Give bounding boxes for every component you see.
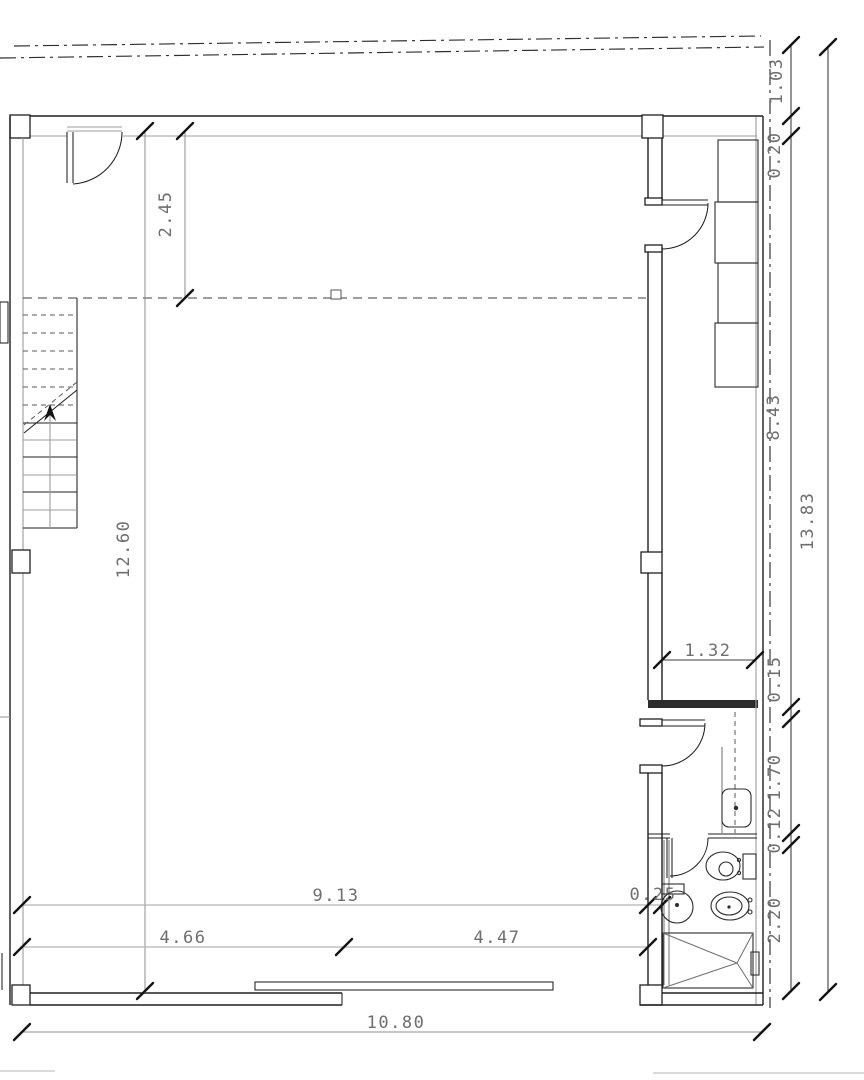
entrance-bench [255, 982, 553, 990]
dim-label-right-side-total: 13.83 [798, 492, 818, 551]
pier-top-mid [642, 115, 663, 138]
washbasin-drain [734, 806, 738, 810]
wall-end-cap [645, 198, 662, 205]
toilet-cistern [743, 854, 756, 879]
entry-door [67, 127, 122, 184]
dim-label-bottom-total-width: 10.80 [367, 1013, 426, 1033]
bathroom-corridor-door [662, 720, 705, 766]
dim-label-right-side-upper: 8.43 [764, 394, 784, 441]
upper-right-door [662, 200, 708, 249]
door-swing-arc [73, 132, 122, 184]
dim-label-bathroom-width: 1.32 [685, 641, 732, 661]
cabinet-unit [718, 140, 758, 202]
floor-plan-sheet: 2.45 12.60 1.03 0.20 8.43 13.83 0.15 1.7… [0, 0, 864, 1080]
stair-treads-above-break [23, 315, 77, 405]
dimension-ticks [14, 37, 836, 1040]
toilet-seat-hinge [737, 871, 740, 874]
left-wall-pier-bottom [12, 985, 30, 1005]
bidet-drain [727, 905, 730, 908]
wall-end-cap [640, 719, 662, 726]
bidet-tap [748, 910, 752, 914]
wall-end-cap [640, 765, 662, 773]
shower-tray [663, 933, 759, 988]
bottom-wall [30, 982, 763, 1005]
dim-label-partition-upper: 0.15 [765, 656, 785, 703]
wall-end-cap [645, 245, 662, 252]
boundary-line-upper [14, 36, 761, 46]
dim-label-bottom-span-right: 4.47 [474, 928, 521, 948]
toilet [706, 852, 756, 880]
shower-slope-line [663, 933, 737, 963]
column-marker [331, 290, 341, 299]
partition-wall-upper [648, 700, 758, 708]
dim-label-room-depth-top: 2.45 [156, 191, 176, 238]
wardrobe-cabinets [715, 140, 758, 387]
shower-slope-line [663, 963, 737, 988]
corner-pier-top-left [10, 115, 30, 138]
toilet-drain [719, 862, 733, 876]
dim-label-wall-top-right: 0.20 [765, 132, 785, 179]
cabinet-unit [715, 202, 758, 263]
shower-tray-outline [663, 933, 753, 988]
dim-label-wall-right-bottom: 0.25 [630, 885, 677, 905]
dim-label-wc-room-depth: 2.20 [765, 897, 785, 944]
boundary-line-lower [0, 47, 764, 58]
left-wall-pier [12, 550, 30, 573]
exterior-right-wall [756, 116, 763, 1005]
dimension-labels: 2.45 12.60 1.03 0.20 8.43 13.83 0.15 1.7… [114, 58, 818, 1033]
pier-bottom-right [640, 985, 662, 1005]
dim-label-interior-width-bottom: 9.13 [313, 886, 360, 906]
dim-label-interior-height-left: 12.60 [114, 520, 134, 579]
dim-label-bottom-span-left: 4.66 [160, 928, 207, 948]
dim-label-setback-top-right: 1.03 [767, 58, 787, 105]
cabinet-unit [715, 323, 758, 387]
bidet [711, 892, 752, 920]
door-swing-arc [662, 203, 708, 249]
door-swing-arc [670, 838, 708, 876]
exterior-pilaster [0, 302, 8, 343]
bidet-tap [748, 898, 752, 902]
mezzanine-edge-line [23, 290, 646, 299]
shower-drain-channel [751, 952, 759, 975]
interior-wall-pier [641, 552, 662, 573]
cabinet-unit [718, 263, 758, 323]
dim-label-partition-lower: 0.12 [765, 807, 785, 854]
dim-label-bathroom-corridor-depth: 1.70 [765, 754, 785, 801]
interior-right-wall [640, 138, 758, 985]
vanity-corridor [722, 712, 751, 833]
top-wall [10, 115, 763, 138]
wc-partition-wall [648, 834, 757, 838]
dimension-lines [22, 45, 828, 1032]
left-wall [0, 116, 30, 1005]
door-swing-arc [662, 723, 705, 766]
wc-door [667, 838, 708, 878]
floor-plan-drawing: 2.45 12.60 1.03 0.20 8.43 13.83 0.15 1.7… [0, 0, 864, 1080]
staircase [23, 298, 77, 528]
